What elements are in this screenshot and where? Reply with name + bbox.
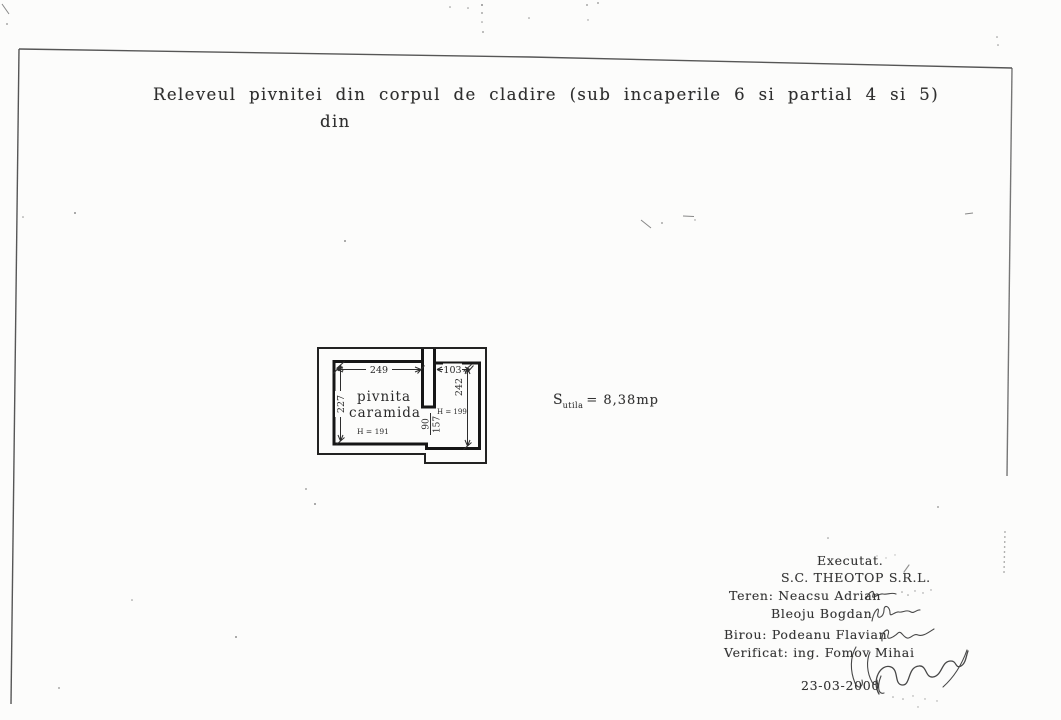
floor-plan: 249 103 227 242 90 157 pivnita car — [318, 348, 486, 463]
verified-line: Verificat: ing. Fomov Mihai — [724, 645, 915, 660]
area-subscript: utila — [563, 401, 584, 410]
document-title: Releveul pivnitei din corpul de cladire … — [153, 85, 939, 104]
dim-103-label: 103 — [443, 365, 461, 376]
border-right-line — [1007, 68, 1012, 476]
signature-bleoju — [872, 606, 920, 621]
noise-strokes — [2, 4, 973, 228]
plan-top-recess — [423, 351, 435, 408]
dim-242-label: 242 — [454, 378, 465, 396]
border-right-faint-segment — [1004, 531, 1005, 573]
executed-by-label: Executat. — [817, 553, 883, 568]
scanned-survey-document: { "doc": { "title_line1": "Releveul pivn… — [0, 0, 1061, 720]
border-top-line — [19, 49, 1012, 68]
signature-fomov-tail — [943, 650, 967, 687]
signature-podeanu — [882, 629, 934, 641]
area-value: = 8,38mp — [586, 393, 659, 408]
scan-linework: 249 103 227 242 90 157 pivnita car — [0, 0, 1061, 720]
office-line: Birou: Podeanu Flavian — [724, 627, 887, 642]
field-surveyor-line: Teren: Neacsu Adrian — [729, 588, 881, 603]
right-section-height-label: H = 199 — [437, 408, 467, 416]
dim-227-label: 227 — [336, 395, 347, 413]
company-name: S.C. THEOTOP S.R.L. — [781, 570, 931, 585]
signature-neacsu-dots — [901, 589, 932, 596]
area-symbol: S — [553, 392, 563, 408]
document-title-line2: din — [320, 112, 351, 131]
signature-fomov-dots — [892, 695, 938, 707]
room-label-line1: pivnita — [357, 389, 411, 405]
border-left-line — [11, 49, 19, 704]
document-date: 23-03-2000 — [801, 678, 880, 693]
room-label-line2: caramida — [349, 405, 421, 421]
field-surveyor-line-2: Bleoju Bogdan — [771, 606, 872, 621]
dim-157-label: 157 — [433, 416, 443, 433]
corner-tick-mark — [2, 4, 9, 14]
dim-249-label: 249 — [370, 365, 388, 376]
noise-specks — [6, 2, 999, 689]
dimension-right-depth — [464, 365, 472, 450]
room-height-label: H = 191 — [357, 427, 389, 436]
usable-area-note: Sutila= 8,38mp — [553, 392, 659, 410]
